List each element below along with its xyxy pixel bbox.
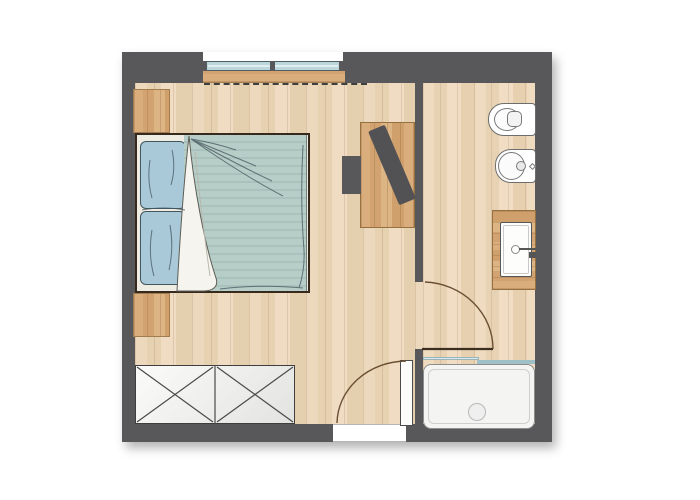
- floor-plan-canvas: [0, 0, 700, 500]
- bathroom-door-arc: [425, 282, 493, 349]
- wardrobe-x-lines: [137, 365, 293, 424]
- bed-sheet-fold: [177, 136, 217, 291]
- entrance-door-arc: [337, 361, 406, 423]
- line-art-overlay: [0, 0, 700, 500]
